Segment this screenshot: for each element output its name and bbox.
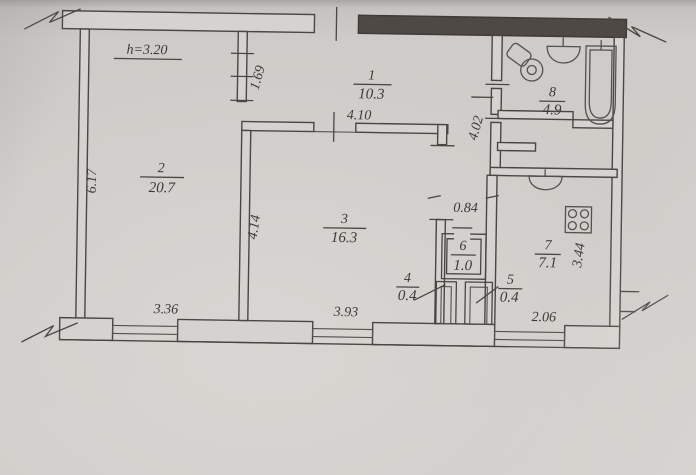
floorplan-photo: h=3.20 1 10.3 2 20.7 3 16.3 4 0.4 5 0.4 … (0, 0, 696, 475)
room-3-number: 3 (340, 212, 348, 227)
dim-bottom-right: 2.06 (531, 310, 556, 325)
room-8-number: 8 (549, 85, 556, 100)
interior-walls (227, 31, 619, 326)
stove-icon (565, 207, 591, 233)
window-icon (495, 331, 565, 340)
dim-left-wall: 6.17 (85, 168, 100, 194)
window-icon (313, 329, 373, 338)
dim-bottom-center: 3.93 (333, 305, 359, 320)
bathtub-icon (585, 40, 616, 124)
room-4-area: 0.4 (398, 288, 417, 304)
room-3-area: 16.3 (331, 230, 357, 246)
dim-corridor: 4.02 (466, 114, 487, 142)
dim-bottom-left: 3.36 (153, 302, 179, 317)
room-6-area: 1.0 (453, 258, 472, 274)
room-1-number: 1 (368, 68, 375, 83)
room-2-area: 20.7 (149, 180, 177, 196)
toilet-icon (505, 42, 543, 81)
dim-room3-top: 4.10 (347, 108, 372, 123)
room-6-number: 6 (459, 239, 466, 254)
room-5-area: 0.4 (500, 290, 519, 306)
dim-corridor-width: 0.84 (453, 201, 478, 216)
room-4-number: 4 (404, 271, 411, 286)
plan-group: h=3.20 1 10.3 2 20.7 3 16.3 4 0.4 5 0.4 … (19, 2, 672, 352)
ceiling-height-label: h=3.20 (126, 43, 167, 59)
dim-partition-1-2: 1.69 (248, 64, 269, 92)
labels: h=3.20 1 10.3 2 20.7 3 16.3 4 0.4 5 0.4 … (83, 42, 592, 326)
dim-kitchen-right: 3.44 (570, 242, 589, 270)
room-5-number: 5 (507, 273, 514, 288)
room-1-area: 10.3 (358, 86, 384, 102)
floorplan-drawing: h=3.20 1 10.3 2 20.7 3 16.3 4 0.4 5 0.4 … (0, 0, 696, 475)
break-mark-icon (622, 294, 668, 320)
room-8-area: 4.9 (543, 102, 562, 118)
room-7-number: 7 (544, 238, 552, 253)
window-icon (113, 325, 178, 334)
room-7-area: 7.1 (538, 255, 557, 271)
kitchen-fixtures (528, 169, 592, 233)
sink-icon (547, 37, 580, 63)
dim-room3-left: 4.14 (245, 214, 264, 241)
room-2-number: 2 (158, 161, 165, 176)
